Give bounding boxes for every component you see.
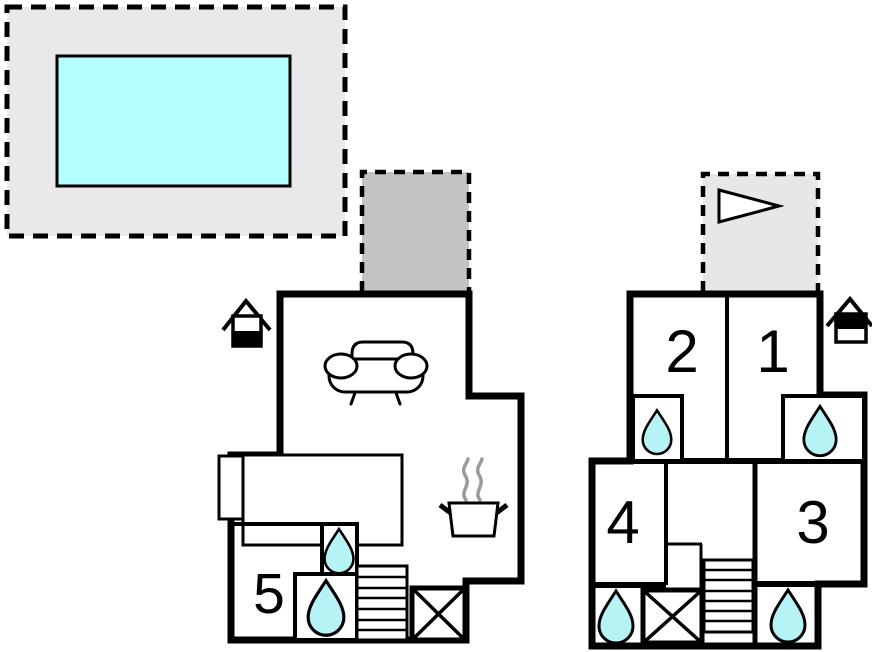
balcony-area-icon	[703, 174, 818, 292]
floor-plan-canvas: 5	[0, 0, 872, 652]
terrace-fill	[362, 172, 469, 292]
bench	[219, 456, 243, 519]
pool-area	[7, 7, 345, 236]
swimming-pool-icon	[57, 56, 290, 186]
room-number: 5	[253, 562, 285, 626]
terrace-area-icon	[362, 172, 469, 292]
stairs-icon	[357, 566, 407, 640]
room-number: 1	[756, 318, 789, 385]
house-ground-floor-icon	[223, 301, 270, 346]
room-number: 2	[665, 318, 698, 385]
room-number: 3	[796, 489, 829, 556]
void-cross-icon	[643, 590, 702, 643]
room-number: 4	[606, 489, 639, 556]
stairs-icon	[704, 560, 753, 632]
house-upper-floor-icon	[827, 299, 872, 342]
first-floor-plan: 2 1 4 3	[592, 174, 872, 646]
void-cross-icon	[412, 588, 465, 640]
ground-floor-plan: 5	[219, 172, 521, 640]
